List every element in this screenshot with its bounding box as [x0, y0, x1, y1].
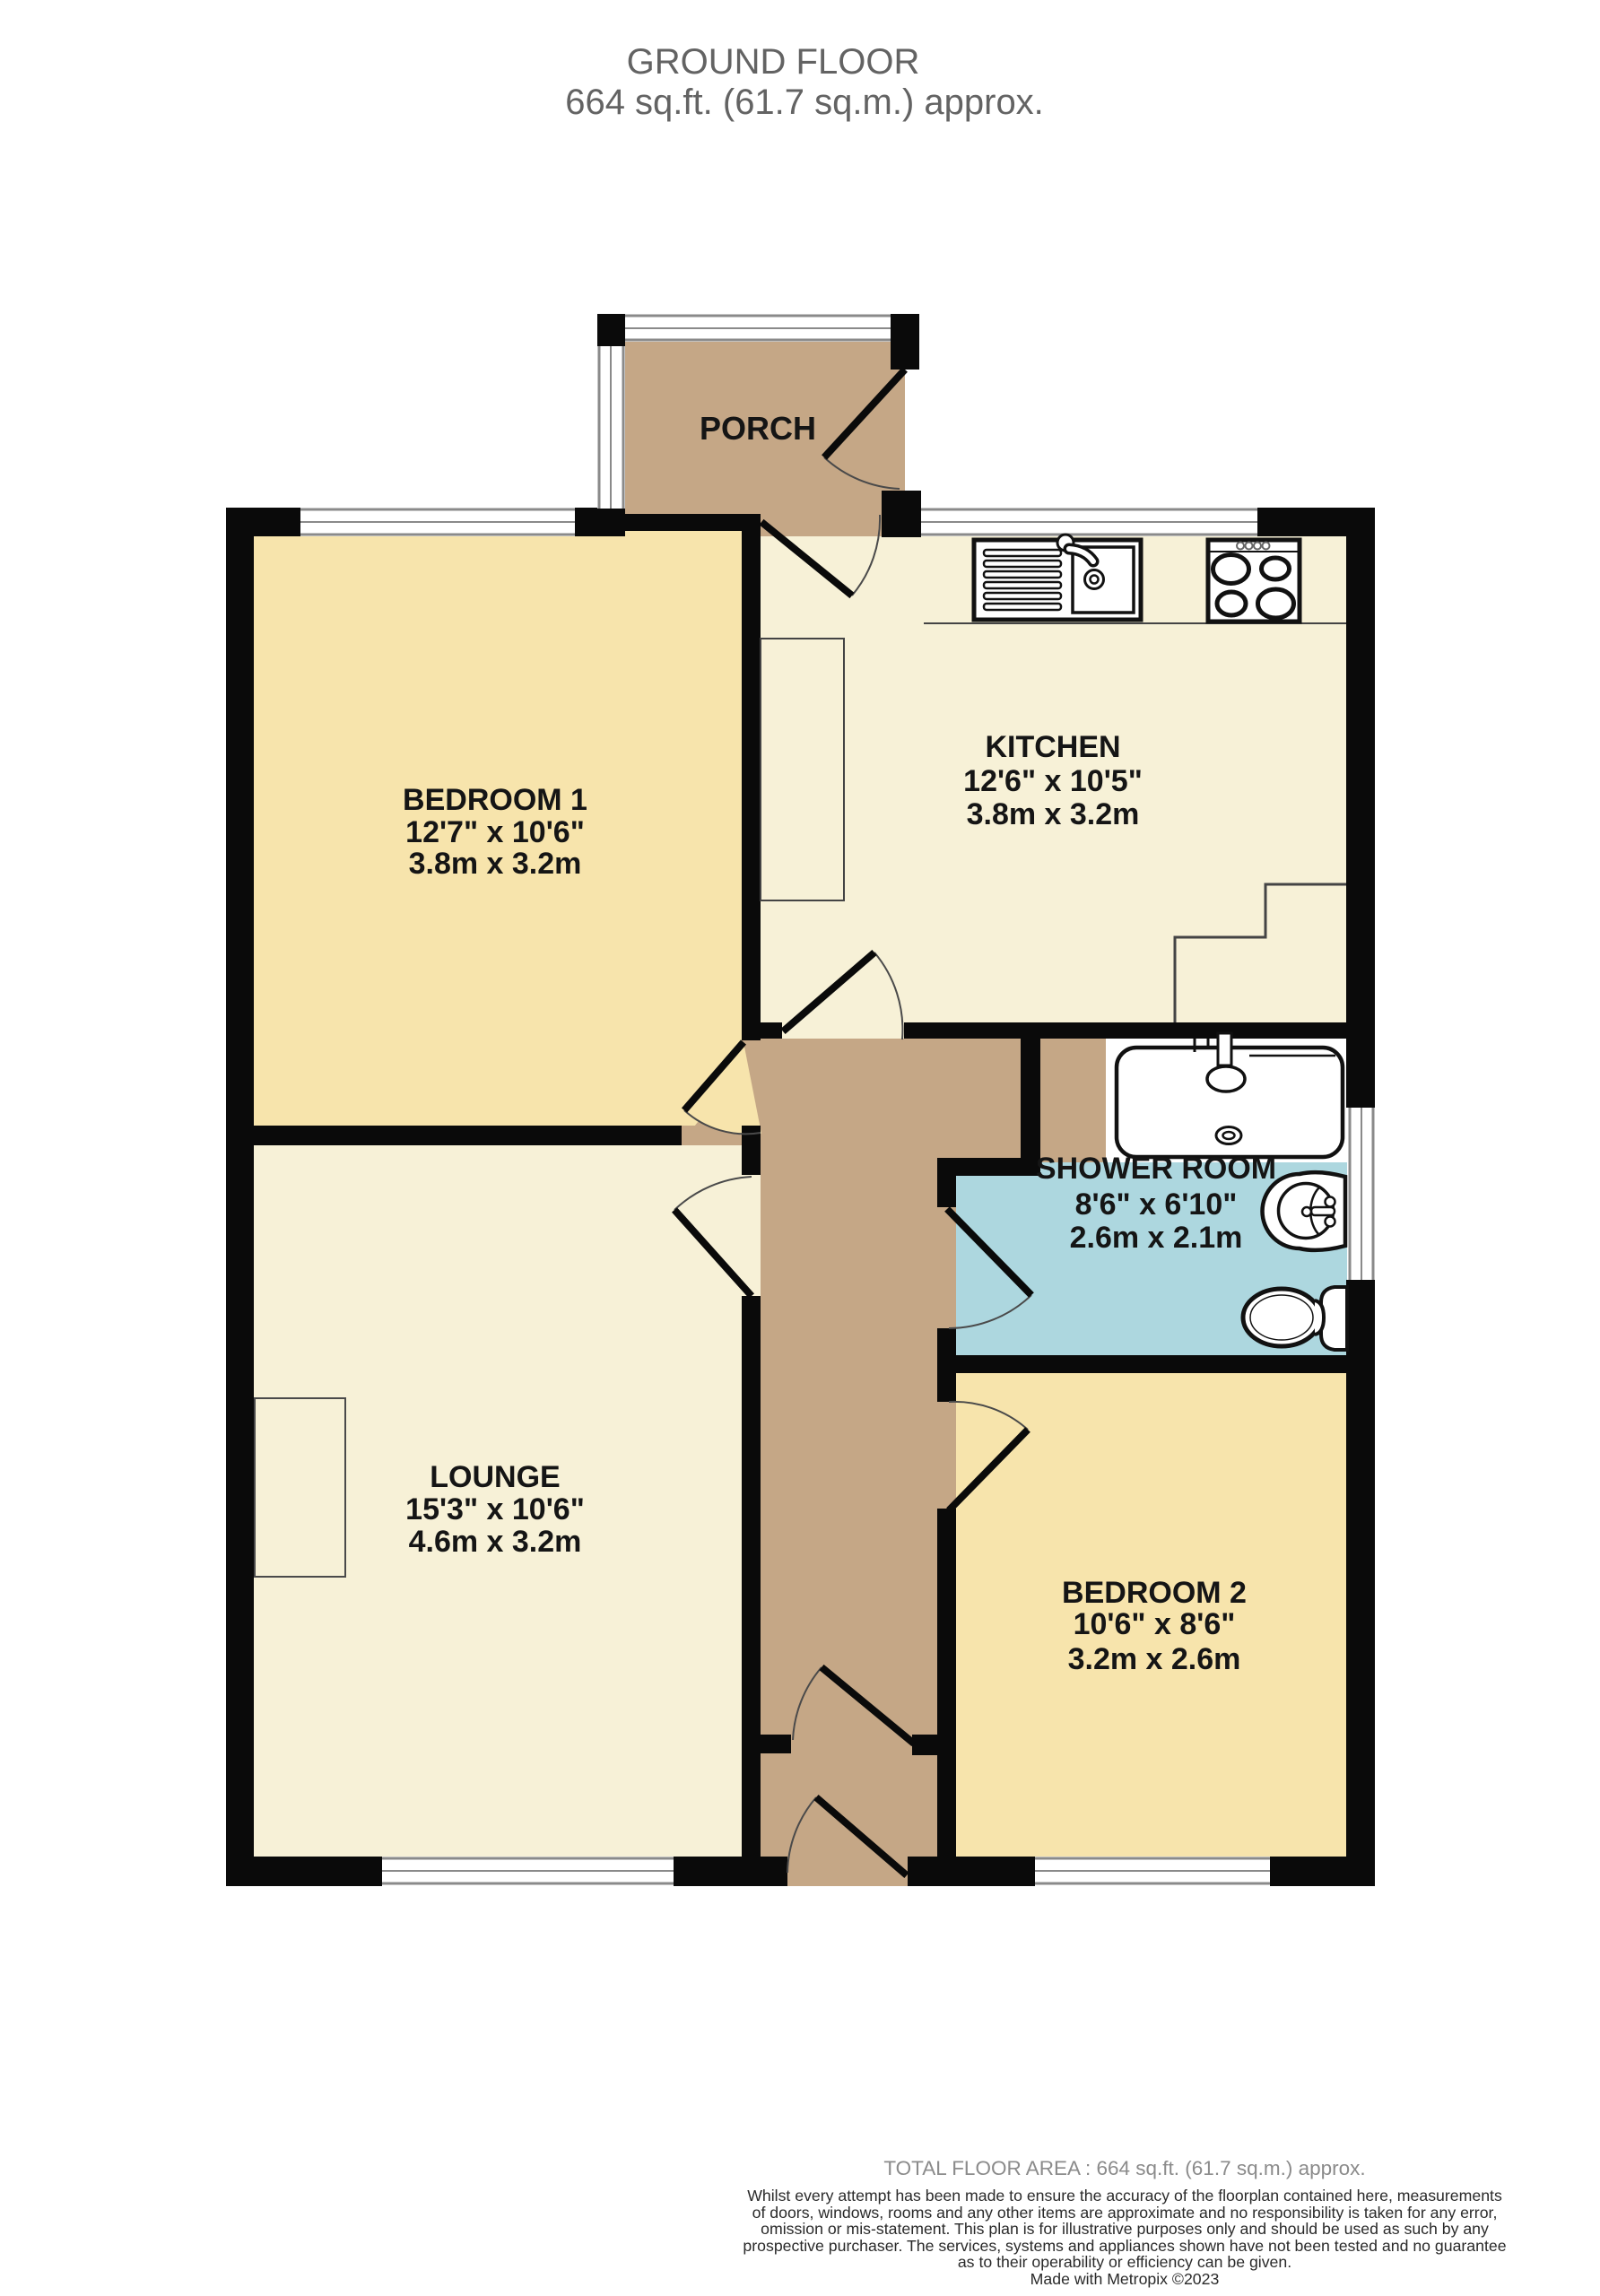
svg-text:664 sq.ft. (61.7 sq.m.) approx: 664 sq.ft. (61.7 sq.m.) approx. — [565, 83, 1044, 122]
svg-text:GROUND FLOOR: GROUND FLOOR — [627, 42, 920, 82]
svg-text:of doors, windows, rooms and a: of doors, windows, rooms and any other i… — [752, 2204, 1498, 2222]
svg-text:10'6" x 8'6": 10'6" x 8'6" — [1074, 1607, 1236, 1641]
svg-text:12'7" x 10'6": 12'7" x 10'6" — [405, 815, 585, 849]
svg-text:12'6" x 10'5": 12'6" x 10'5" — [963, 764, 1143, 798]
svg-text:4.6m x 3.2m: 4.6m x 3.2m — [409, 1525, 582, 1559]
svg-text:Made with Metropix ©2023: Made with Metropix ©2023 — [1030, 2270, 1220, 2288]
svg-text:2.6m x 2.1m: 2.6m x 2.1m — [1070, 1221, 1243, 1255]
svg-text:TOTAL FLOOR AREA : 664 sq.ft.: TOTAL FLOOR AREA : 664 sq.ft. (61.7 sq.m… — [883, 2157, 1365, 2179]
svg-text:3.8m x 3.2m: 3.8m x 3.2m — [967, 797, 1140, 831]
svg-text:LOUNGE: LOUNGE — [430, 1460, 560, 1494]
svg-text:omission or mis-statement. Thi: omission or mis-statement. This plan is … — [761, 2220, 1489, 2238]
svg-text:BEDROOM 1: BEDROOM 1 — [403, 783, 587, 817]
svg-text:PORCH: PORCH — [700, 410, 816, 447]
svg-text:3.8m x 3.2m: 3.8m x 3.2m — [409, 847, 582, 881]
svg-text:3.2m x 2.6m: 3.2m x 2.6m — [1068, 1642, 1241, 1676]
svg-text:15'3" x 10'6": 15'3" x 10'6" — [405, 1492, 585, 1526]
svg-text:8'6" x 6'10": 8'6" x 6'10" — [1075, 1187, 1238, 1222]
svg-text:BEDROOM 2: BEDROOM 2 — [1062, 1576, 1247, 1610]
svg-text:KITCHEN: KITCHEN — [985, 730, 1120, 764]
svg-text:Whilst every attempt has been: Whilst every attempt has been made to en… — [747, 2187, 1502, 2205]
svg-text:as to their operability or eff: as to their operability or efficiency ca… — [958, 2253, 1291, 2271]
svg-text:SHOWER ROOM: SHOWER ROOM — [1036, 1152, 1276, 1186]
svg-text:prospective purchaser. The ser: prospective purchaser. The services, sys… — [743, 2237, 1506, 2255]
